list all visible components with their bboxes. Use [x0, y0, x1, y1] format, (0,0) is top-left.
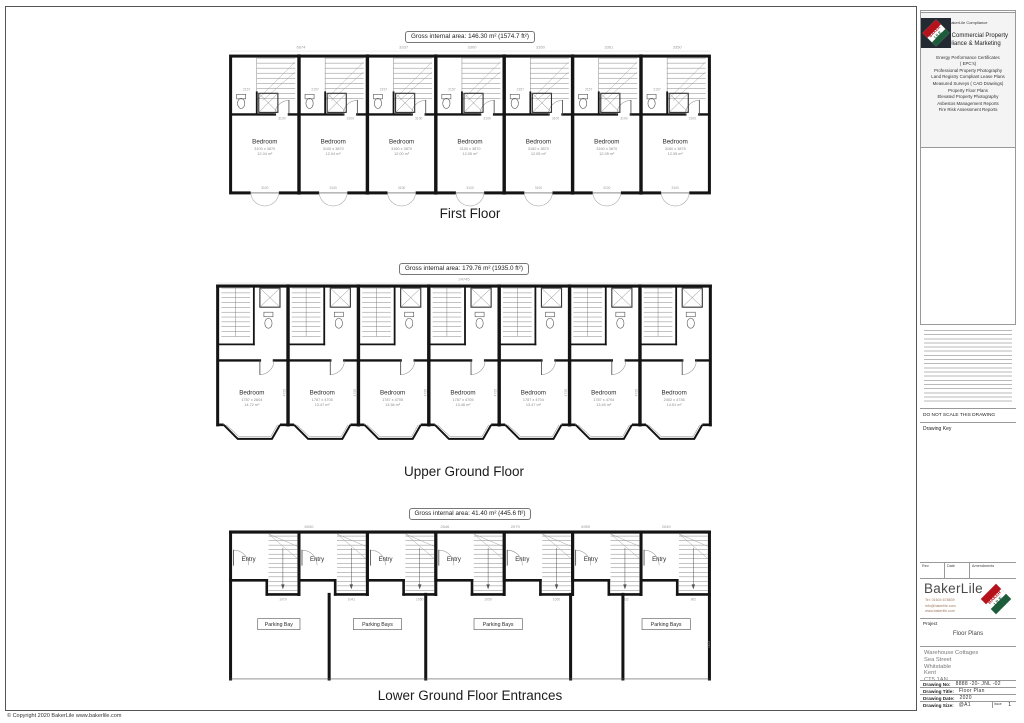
room-label: Bedroom: [521, 390, 546, 397]
room-label: Entry: [378, 557, 392, 563]
svg-text:2402 x 4736: 2402 x 4736: [664, 398, 685, 402]
parking-label: Parking Bay: [265, 622, 294, 628]
revision-strip: Rev Date Amendments: [920, 562, 1016, 578]
svg-text:3361: 3361: [604, 45, 614, 50]
svg-text:12.04 m²: 12.04 m²: [257, 152, 273, 156]
svg-text:13.36 m²: 13.36 m²: [385, 403, 401, 407]
drawing-size-label: Drawing Size:: [920, 703, 954, 708]
svg-text:2646: 2646: [440, 524, 450, 529]
room-label: Entry: [447, 557, 461, 563]
svg-text:2157: 2157: [585, 87, 593, 91]
svg-text:3100: 3100: [552, 116, 560, 120]
svg-text:3160 x 3875: 3160 x 3875: [665, 147, 686, 151]
svg-text:2157: 2157: [653, 87, 661, 91]
svg-text:2157: 2157: [517, 87, 525, 91]
room-label: Bedroom: [380, 390, 405, 397]
room-label: Entry: [242, 557, 256, 563]
drawing-size-value: @A1: [959, 702, 971, 708]
svg-text:13.47 m²: 13.47 m²: [315, 403, 331, 407]
upper-ground-floor-plan-svg: 24745Bedroom1787 x 260414.72 m²4705Bedro…: [212, 274, 716, 457]
svg-text:6674: 6674: [297, 45, 307, 50]
svg-text:2079: 2079: [511, 524, 521, 529]
svg-text:3100: 3100: [620, 116, 628, 120]
svg-text:6930: 6930: [305, 524, 315, 529]
date-col-header: Date: [945, 563, 970, 578]
room-label: Entry: [515, 557, 529, 563]
svg-text:13.45 m²: 13.45 m²: [596, 403, 612, 407]
service-item: Asbestos Management Reports: [921, 101, 1015, 108]
service-item: ( EPC's): [921, 61, 1015, 68]
room-label: Bedroom: [389, 139, 414, 146]
service-item: Property Floor Plans: [921, 88, 1015, 95]
svg-text:1787 x 4705: 1787 x 4705: [452, 398, 473, 402]
svg-text:2157: 2157: [448, 87, 456, 91]
drawing-title-row: Drawing Title: Floor Plan: [920, 687, 1016, 694]
issue-box: Issue 1: [992, 702, 1016, 708]
amendments-col-header: Amendments: [970, 563, 1016, 578]
rev-col-header: Rev: [920, 563, 945, 578]
svg-text:4705: 4705: [564, 389, 568, 397]
room-label: Bedroom: [662, 390, 687, 397]
svg-text:3100 x 3870: 3100 x 3870: [254, 147, 275, 151]
copyright-note: © Copyright 2020 BakerLile www.bakerlile…: [7, 713, 121, 719]
svg-text:3100: 3100: [535, 186, 543, 190]
svg-text:12.05 m²: 12.05 m²: [462, 152, 478, 156]
upper-floor-area-row: Gross internal area: 179.76 m² (1935.0 f…: [212, 257, 716, 275]
room-label: Bedroom: [663, 139, 688, 146]
service-item: Elevated Property Photography: [921, 94, 1015, 101]
svg-text:12.05 m²: 12.05 m²: [668, 152, 684, 156]
address-line: Kent: [924, 670, 1016, 677]
svg-text:2049: 2049: [662, 524, 672, 529]
address-line: Warehouse Cottages: [924, 650, 1016, 657]
svg-text:3160 x 3870: 3160 x 3870: [528, 147, 549, 151]
disclaimer-lines: [924, 330, 1012, 402]
svg-text:3100: 3100: [689, 116, 697, 120]
drawing-key-label: Drawing Key: [923, 426, 951, 432]
first-floor-plan-svg: 66743337330033503361335021573100Bedroom3…: [228, 40, 712, 211]
svg-text:3100: 3100: [347, 116, 355, 120]
svg-text:12.04 m²: 12.04 m²: [326, 152, 342, 156]
svg-text:3100: 3100: [278, 116, 286, 120]
svg-text:13.48 m²: 13.48 m²: [455, 403, 471, 407]
floor-title-upper: Upper Ground Floor: [212, 464, 716, 479]
svg-text:3100: 3100: [483, 116, 491, 120]
bakerlile-logo-icon: BAKER LILE: [980, 583, 1012, 615]
service-item: Measured Surveys ( CAD Drawings): [921, 81, 1015, 88]
svg-text:1787 x 2604: 1787 x 2604: [241, 398, 263, 402]
title-block: BAKER LILE BakerLile Compliance National…: [916, 6, 1019, 711]
room-label: Bedroom: [594, 139, 619, 146]
svg-text:3100: 3100: [603, 186, 611, 190]
svg-text:4705: 4705: [283, 389, 287, 397]
upper-ground-floor-plan: 24745Bedroom1787 x 260414.72 m²4705Bedro…: [218, 277, 711, 439]
parking-label: Parking Bays: [362, 622, 393, 628]
drawing-title-label: Drawing Title:: [920, 689, 954, 694]
room-label: Bedroom: [591, 390, 616, 397]
brand-contact: Tel: 01604 678839 info@bakerlile.com www…: [925, 598, 956, 615]
svg-text:2157: 2157: [243, 87, 251, 91]
svg-text:3160 x 3870: 3160 x 3870: [596, 147, 617, 151]
svg-text:3100: 3100: [330, 186, 338, 190]
room-label: Bedroom: [252, 139, 277, 146]
svg-text:3100: 3100: [672, 186, 680, 190]
project-label: Project: [920, 619, 1016, 626]
svg-text:1050: 1050: [416, 597, 424, 601]
svg-text:3300: 3300: [468, 45, 478, 50]
floor-title-first: First Floor: [228, 206, 712, 221]
svg-text:1079: 1079: [279, 597, 287, 601]
parking-label: Parking Bays: [483, 622, 514, 628]
lower-ground-floor-plan-svg: 69302646207969592049Entry1079Entry1041En…: [228, 522, 712, 689]
site-address: Warehouse CottagesSea StreetWhitstableKe…: [920, 646, 1016, 680]
svg-text:3100: 3100: [398, 186, 406, 190]
floor-title-lower: Lower Ground Floor Entrances: [228, 688, 712, 703]
svg-text:6959: 6959: [581, 524, 591, 529]
svg-text:3100: 3100: [261, 186, 269, 190]
svg-text:3350: 3350: [536, 45, 546, 50]
service-item: Energy Performance Certificates: [921, 55, 1015, 62]
svg-text:1787 x 4704: 1787 x 4704: [593, 398, 615, 402]
project-value: Floor Plans: [920, 631, 1016, 637]
svg-text:1050: 1050: [553, 597, 561, 601]
drawing-size-row: Drawing Size: @A1 Issue 1: [920, 701, 1016, 708]
drawing-no-label: Drawing No:: [920, 682, 951, 687]
svg-text:12.00 m²: 12.00 m²: [394, 152, 410, 156]
svg-text:7423: 7423: [707, 641, 711, 649]
room-label: Bedroom: [450, 390, 475, 397]
lower-ground-floor-plan: 69302646207969592049Entry1079Entry1041En…: [231, 524, 711, 679]
svg-text:1787 x 4705: 1787 x 4705: [382, 398, 403, 402]
svg-text:13.47 m²: 13.47 m²: [526, 403, 542, 407]
room-label: Entry: [310, 557, 324, 563]
first-floor-plan: 66743337330033503361335021573100Bedroom3…: [231, 45, 710, 206]
contact-web: www.bakerlile.com: [925, 609, 956, 615]
svg-text:3337: 3337: [399, 45, 409, 50]
svg-text:24745: 24745: [458, 277, 470, 282]
gross-area-label-upper: Gross internal area: 179.76 m² (1935.0 f…: [399, 263, 529, 275]
svg-text:14.91 m²: 14.91 m²: [667, 403, 683, 407]
drawing-date-row: Drawing Date: 2020: [920, 694, 1016, 701]
svg-text:12.05 m²: 12.05 m²: [531, 152, 547, 156]
room-label: Bedroom: [321, 139, 346, 146]
service-item: Professional Property Photography: [921, 68, 1015, 75]
service-item: Fire Risk Assessment Reports: [921, 107, 1015, 114]
svg-text:1041: 1041: [348, 597, 356, 601]
svg-text:14.72 m²: 14.72 m²: [244, 403, 260, 407]
svg-text:3100 x 3870: 3100 x 3870: [460, 147, 481, 151]
svg-text:4705: 4705: [634, 389, 638, 397]
address-line: Sea Street: [924, 657, 1016, 664]
drawing-key-box: Drawing Key: [920, 422, 1016, 562]
drawing-date-label: Drawing Date:: [920, 696, 955, 701]
lower-floor-area-row: Gross internal area: 41.40 m² (445.6 ft²…: [228, 502, 712, 520]
svg-text:4705: 4705: [494, 389, 498, 397]
room-label: Entry: [584, 557, 598, 563]
room-label: Bedroom: [457, 139, 482, 146]
gross-area-label-lower: Gross internal area: 41.40 m² (445.6 ft²…: [409, 508, 532, 520]
svg-text:3350: 3350: [673, 45, 683, 50]
svg-text:3160 x 3870: 3160 x 3870: [391, 147, 412, 151]
svg-text:1787 x 4705: 1787 x 4705: [312, 398, 333, 402]
svg-text:3100: 3100: [466, 186, 474, 190]
drawing-no-row: Drawing No: 8888 -20- JNL -02: [920, 680, 1016, 687]
parking-label: Parking Bays: [651, 622, 682, 628]
svg-text:4705: 4705: [353, 389, 357, 397]
project-box: Project Floor Plans: [920, 618, 1016, 646]
room-label: Bedroom: [310, 390, 335, 397]
svg-text:1787 x 4704: 1787 x 4704: [523, 398, 545, 402]
room-label: Bedroom: [526, 139, 551, 146]
svg-text:3100 x 3870: 3100 x 3870: [323, 147, 344, 151]
address-line: Whitstable: [924, 664, 1016, 671]
service-item: Land Registry Compliant Lease Plans: [921, 74, 1015, 81]
room-label: Entry: [652, 557, 666, 563]
svg-text:2157: 2157: [311, 87, 319, 91]
svg-text:12.05 m²: 12.05 m²: [599, 152, 615, 156]
svg-text:1050: 1050: [484, 597, 492, 601]
brand-box: BakerLile Tel: 01604 678839 info@bakerli…: [920, 578, 1016, 618]
disclaimer-text: [920, 324, 1016, 408]
svg-text:3100: 3100: [415, 116, 423, 120]
issue-value: 1: [1008, 702, 1011, 708]
room-label: Bedroom: [239, 390, 264, 397]
bakerlile-compliance-logo-icon: BAKER LILE: [921, 18, 951, 48]
do-not-scale-note: DO NOT SCALE THIS DRAWING: [920, 408, 1016, 422]
svg-text:902: 902: [691, 597, 697, 601]
services-list: Energy Performance Certificates( EPC's)P…: [921, 55, 1015, 114]
svg-text:4705: 4705: [423, 389, 427, 397]
compliance-card: BAKER LILE BakerLile Compliance National…: [920, 12, 1016, 148]
issue-label: Issue: [993, 702, 1002, 706]
svg-text:2157: 2157: [380, 87, 388, 91]
contact-tel: Tel: 01604 678839: [925, 598, 956, 604]
